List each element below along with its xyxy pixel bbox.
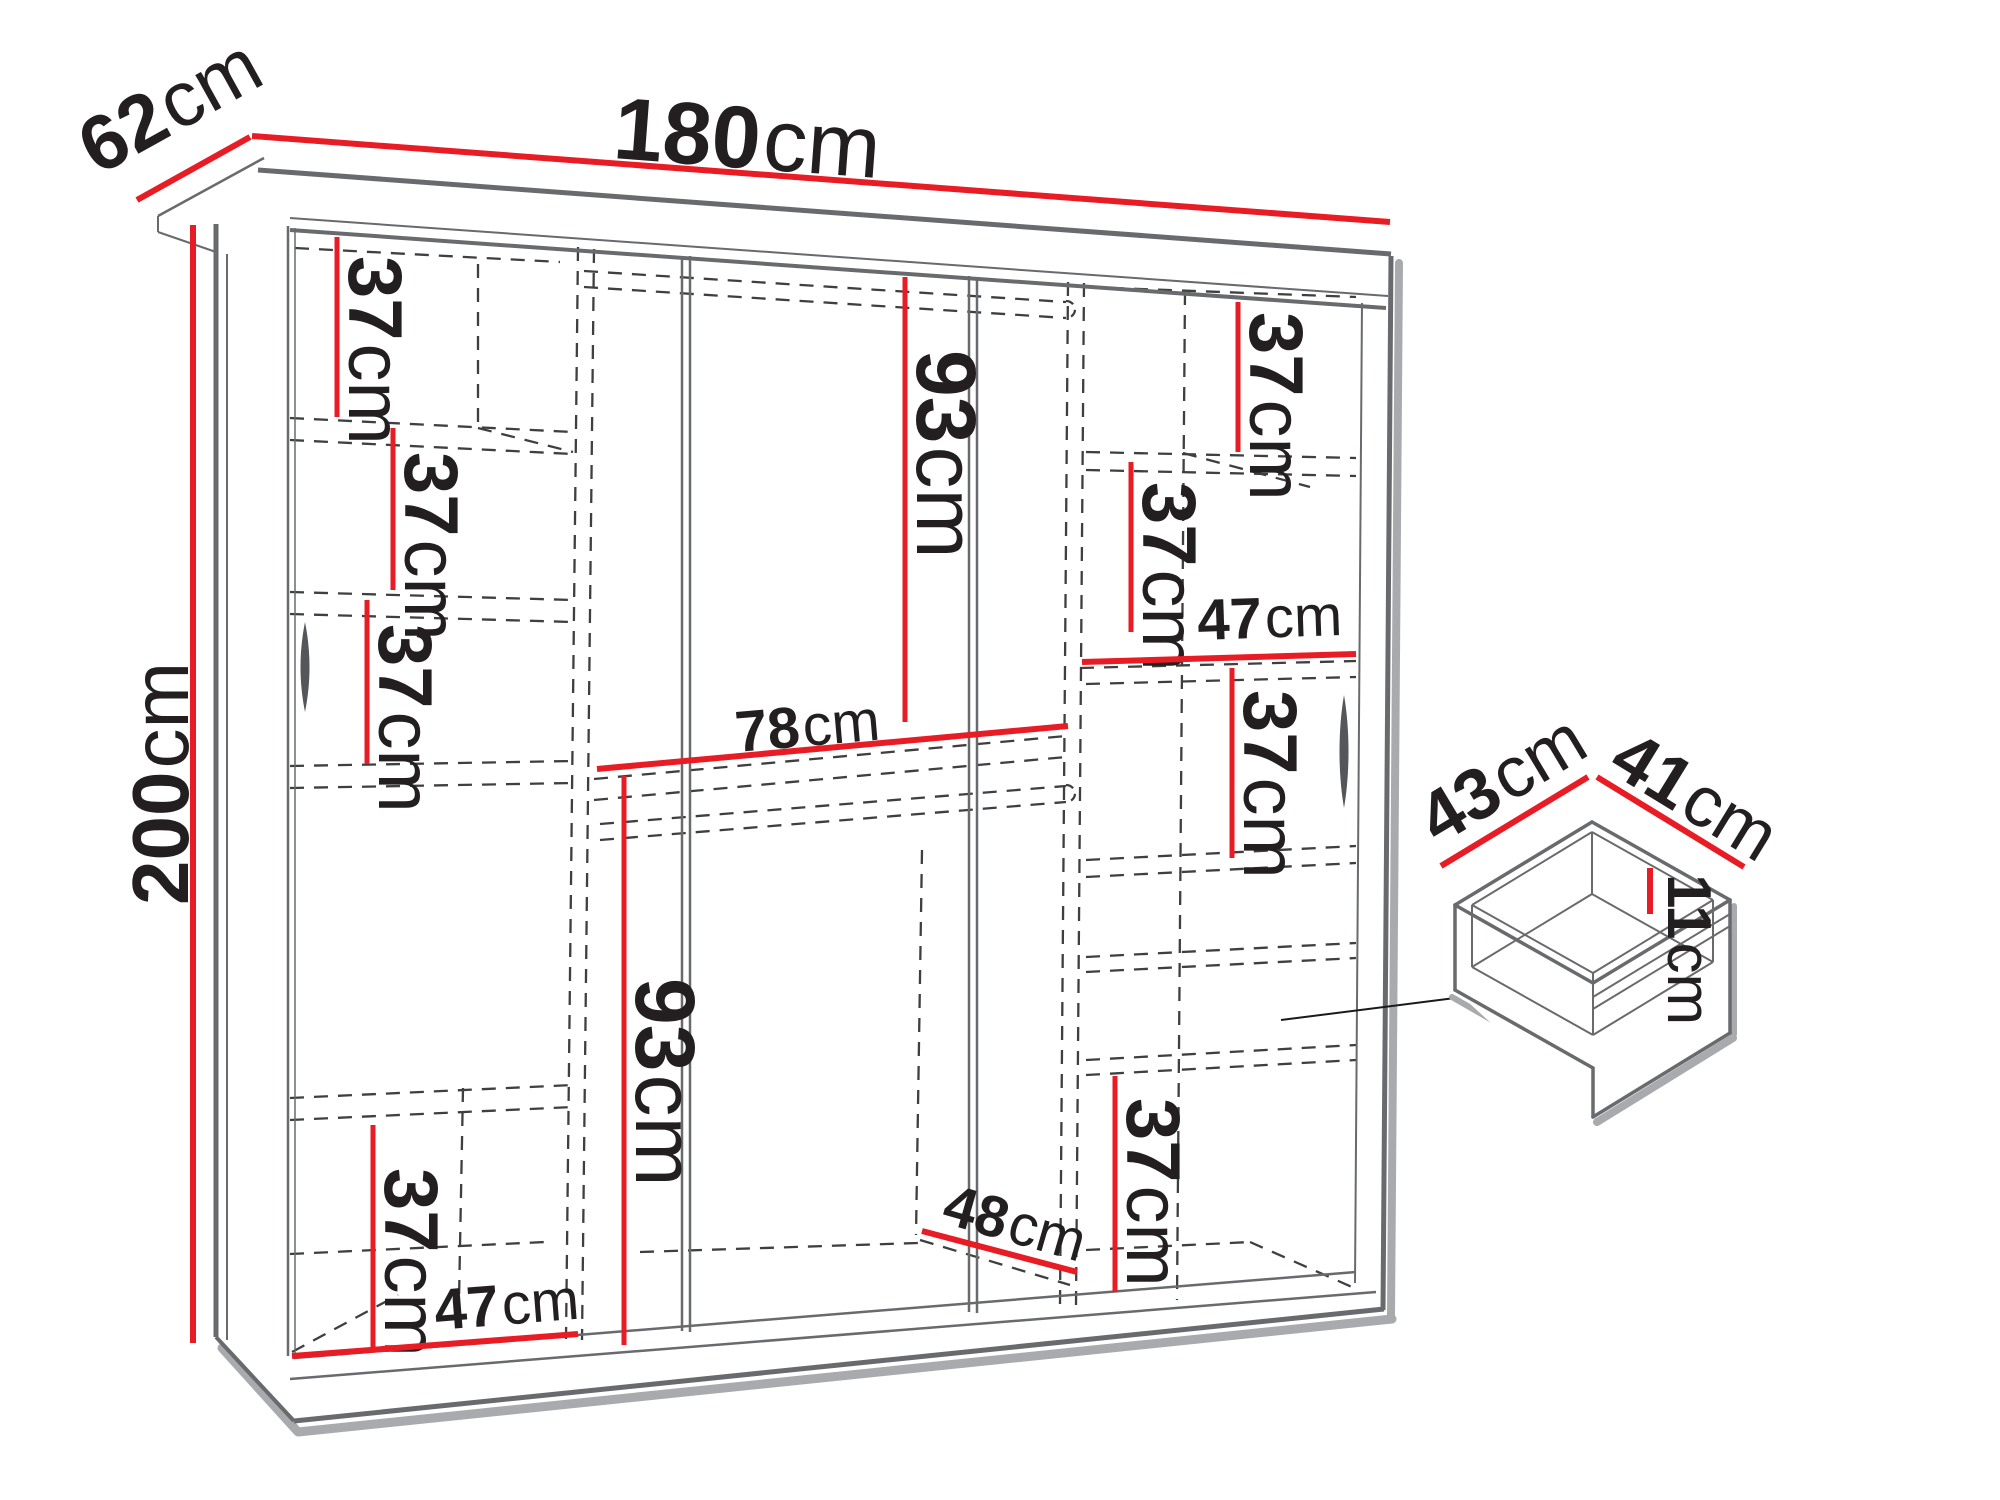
hanging-rail-cap	[1066, 785, 1075, 802]
dim-right-shelf-bottom-value: 37	[1110, 1098, 1195, 1183]
dim-middle-width-value: 78	[732, 695, 802, 765]
hidden-edge-dashed-line	[1086, 1060, 1356, 1075]
dim-right-shelf-1-unit: cm	[1233, 400, 1318, 501]
dim-height-value: 200	[116, 772, 205, 905]
hidden-edge-dashed-line	[566, 247, 578, 1339]
dim-middle-depth-label: 48cm	[936, 1172, 1093, 1274]
hidden-edge-dashed-line	[916, 850, 922, 1235]
door-handle-groove	[1340, 695, 1349, 808]
dim-middle-lower-height-value: 93	[618, 978, 712, 1071]
dim-left-width-value: 47	[432, 1273, 501, 1343]
carcass-line	[158, 158, 264, 216]
dim-left-shelf-2-value: 37	[388, 452, 473, 537]
hidden-edge-dashed-line	[584, 287, 1066, 318]
dim-depth-label: 62cm	[64, 20, 276, 191]
dim-middle-upper-height-value: 93	[899, 350, 993, 443]
hidden-edge-dashed-line	[459, 1088, 463, 1300]
dim-right-shelf-3-unit: cm	[1227, 778, 1312, 879]
dim-left-width-label: 47cm	[432, 1267, 581, 1343]
dim-left-shelf-bottom-value: 37	[368, 1168, 453, 1253]
dim-width-unit: cm	[760, 89, 884, 197]
dim-right-width-unit: cm	[1264, 583, 1344, 651]
dim-right-shelf-1-label: 37cm	[1233, 312, 1318, 501]
dim-left-shelf-3-value: 37	[362, 624, 447, 709]
door-handle-groove	[301, 622, 310, 712]
hidden-edge-dashed-line	[290, 1085, 573, 1098]
dim-width-value: 180	[611, 78, 765, 188]
hidden-edge-dashed-line	[1086, 863, 1356, 877]
hidden-edge-dashed-line	[600, 786, 1066, 824]
dim-drawer-height-value: 11	[1654, 874, 1723, 940]
carcass-line	[216, 1337, 294, 1421]
hidden-edge-dashed-line	[1060, 282, 1068, 1304]
hidden-edge-dashed-line	[1086, 677, 1356, 684]
dim-right-shelf-bottom-label: 37cm	[1110, 1098, 1195, 1287]
dim-right-shelf-bottom-unit: cm	[1110, 1186, 1195, 1287]
carcass-line	[158, 232, 216, 252]
dim-right-width-value: 47	[1196, 586, 1263, 653]
dim-left-shelf-1-value: 37	[332, 256, 417, 341]
dim-left-shelf-1-label: 37cm	[332, 256, 417, 445]
dim-drawer-height-unit: cm	[1654, 943, 1723, 1026]
dim-middle-width-label: 78cm	[732, 688, 882, 765]
hidden-edge-dashed-line	[1076, 283, 1084, 1305]
dim-right-width-line	[1082, 654, 1356, 662]
hidden-edge-dashed-line	[582, 249, 594, 1340]
dim-left-width-unit: cm	[499, 1267, 581, 1338]
dim-left-shelf-3-label: 37cm	[362, 624, 447, 813]
hidden-edge-dashed-line	[600, 802, 1066, 840]
dim-drawer-height-label: 11cm	[1654, 874, 1723, 1025]
hidden-edge-dashed-line	[1086, 1045, 1356, 1060]
dim-width-label: 180cm	[611, 78, 885, 197]
carcass-line	[1355, 303, 1362, 1283]
dim-left-shelf-3-unit: cm	[362, 712, 447, 813]
hidden-edge-dashed-line	[1086, 958, 1356, 972]
dim-right-shelf-3-label: 37cm	[1227, 690, 1312, 879]
drawer-leader-line	[1281, 998, 1455, 1020]
dim-right-shelf-2-value: 37	[1126, 482, 1211, 567]
dim-middle-upper-height-unit: cm	[899, 446, 993, 558]
dim-height-unit: cm	[116, 662, 205, 769]
hidden-edge-dashed-line	[1086, 943, 1356, 957]
dim-right-shelf-1-value: 37	[1233, 312, 1318, 397]
hidden-edge-dashed-line	[1086, 846, 1356, 860]
hidden-edge-dashed-line	[290, 1107, 573, 1120]
carcass-line	[290, 218, 1388, 296]
dim-middle-depth-unit: cm	[1001, 1191, 1093, 1275]
dim-middle-width-unit: cm	[800, 688, 883, 759]
diagram-stage: 180cm62cm200cm37cm37cm37cm37cm47cm93cm78…	[0, 0, 2000, 1500]
wardrobe-dimension-diagram: 180cm62cm200cm37cm37cm37cm37cm47cm93cm78…	[0, 0, 2000, 1500]
dim-middle-lower-height-unit: cm	[618, 1074, 712, 1186]
hidden-edge-dashed-line	[584, 271, 1066, 302]
dim-right-shelf-3-value: 37	[1227, 690, 1312, 775]
dim-right-width-label: 47cm	[1196, 583, 1343, 653]
dim-middle-lower-height-label: 93cm	[618, 978, 712, 1186]
dim-left-shelf-2-label: 37cm	[388, 452, 473, 641]
dim-left-shelf-1-unit: cm	[332, 344, 417, 445]
dim-height-label: 200cm	[116, 662, 205, 905]
dim-middle-upper-height-label: 93cm	[899, 350, 993, 558]
